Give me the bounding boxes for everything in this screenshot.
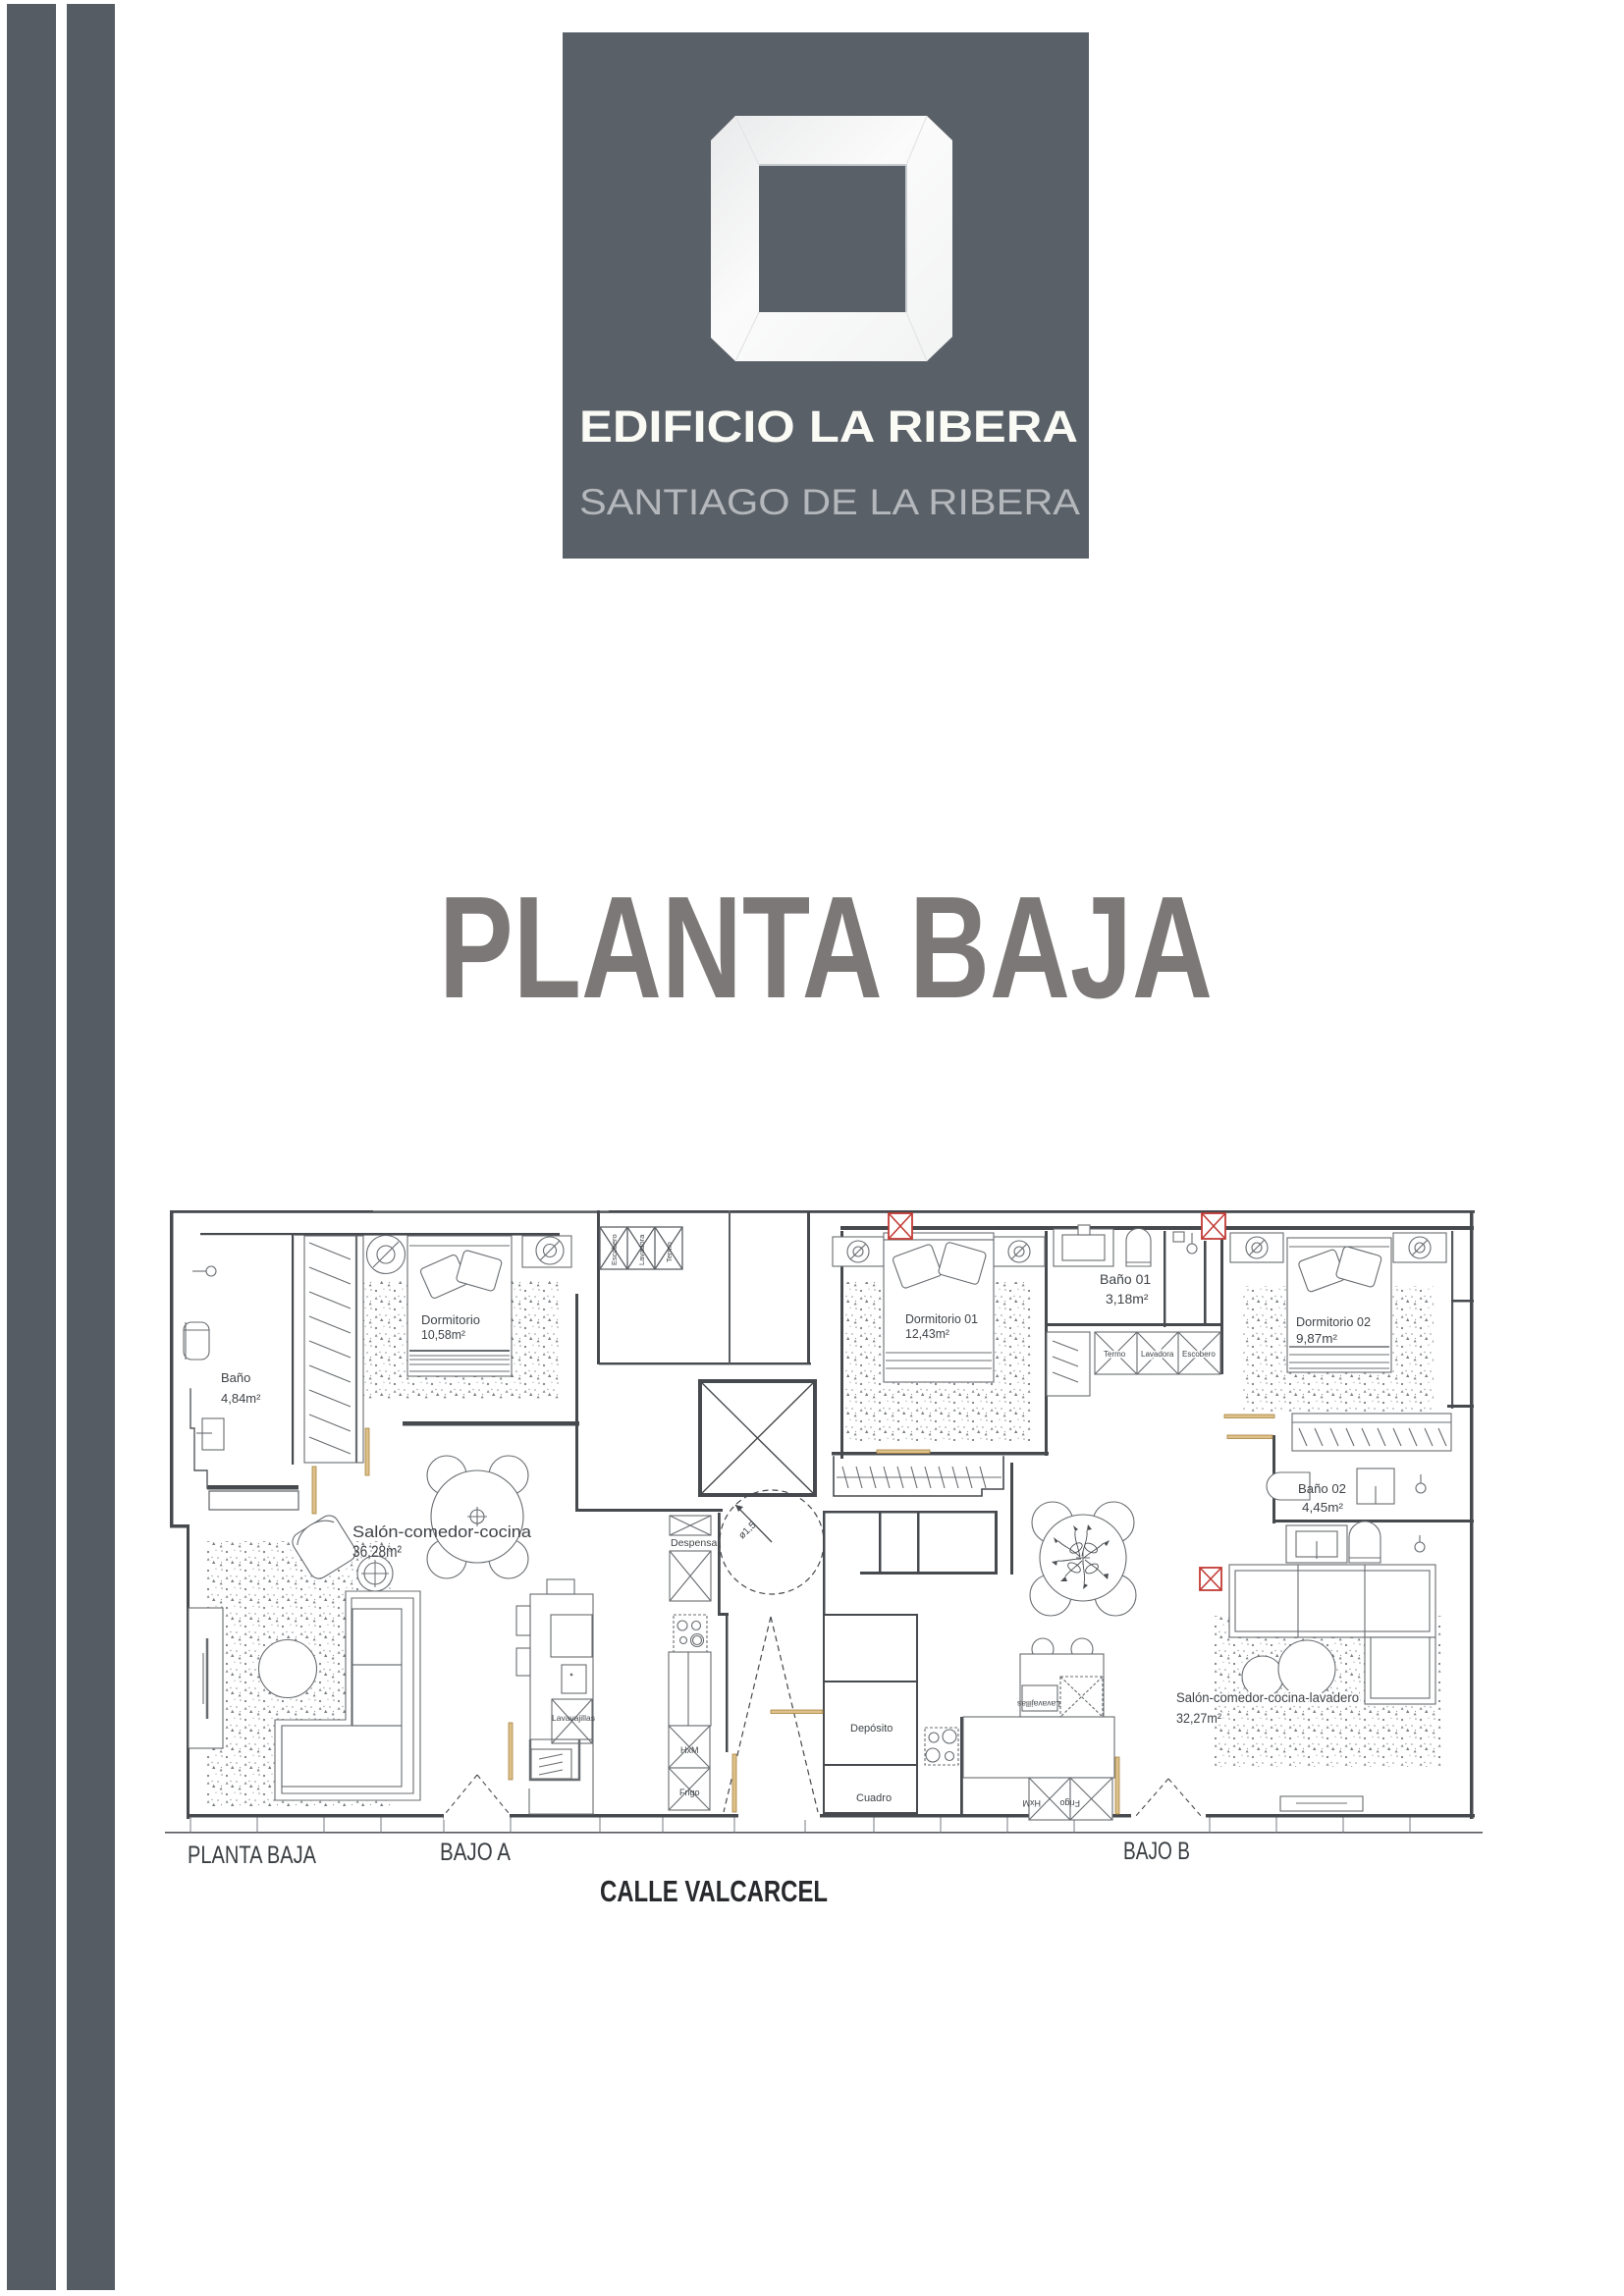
svg-text:9,87m²: 9,87m² [1296, 1331, 1338, 1346]
svg-text:Lavavajillas: Lavavajillas [552, 1713, 595, 1723]
svg-text:Termo: Termo [1104, 1350, 1126, 1359]
svg-text:10,58m²: 10,58m² [421, 1327, 466, 1342]
svg-text:4,45m²: 4,45m² [1302, 1500, 1344, 1515]
svg-text:12,43m²: 12,43m² [905, 1326, 950, 1341]
svg-text:Frigo: Frigo [679, 1788, 700, 1797]
svg-text:Termo: Termo [665, 1242, 674, 1262]
svg-text:Depósito: Depósito [850, 1723, 893, 1735]
svg-text:Baño 01: Baño 01 [1100, 1271, 1151, 1287]
svg-text:Dormitorio 01: Dormitorio 01 [905, 1311, 978, 1326]
svg-text:32,27m²: 32,27m² [1176, 1711, 1221, 1726]
svg-text:36,28m²: 36,28m² [352, 1542, 402, 1561]
svg-text:PLANTA BAJA: PLANTA BAJA [439, 867, 1213, 1029]
svg-text:PLANTA BAJA: PLANTA BAJA [188, 1842, 316, 1869]
svg-text:Baño 02: Baño 02 [1298, 1481, 1346, 1496]
svg-text:Dormitorio: Dormitorio [421, 1312, 480, 1327]
svg-text:Lavavajillas: Lavavajillas [1017, 1699, 1060, 1709]
svg-text:Despensa: Despensa [671, 1537, 717, 1549]
svg-text:Escobero: Escobero [610, 1234, 619, 1265]
svg-text:3,18m²: 3,18m² [1106, 1291, 1149, 1307]
svg-text:CALLE VALCARCEL: CALLE VALCARCEL [600, 1874, 828, 1908]
svg-text:Salón-comedor-cocina: Salón-comedor-cocina [352, 1522, 532, 1541]
svg-text:4,84m²: 4,84m² [221, 1391, 261, 1406]
svg-text:Lavadora: Lavadora [1141, 1350, 1174, 1359]
svg-text:Dormitorio 02: Dormitorio 02 [1296, 1314, 1371, 1329]
svg-text:SANTIAGO DE LA RIBERA: SANTIAGO DE LA RIBERA [579, 482, 1080, 522]
svg-text:Salón-comedor-cocina-lavadero: Salón-comedor-cocina-lavadero [1176, 1690, 1359, 1705]
svg-text:Escobero: Escobero [1182, 1350, 1216, 1359]
svg-text:HxM: HxM [1023, 1798, 1042, 1808]
svg-text:BAJO A: BAJO A [440, 1839, 511, 1866]
svg-text:ø1,5: ø1,5 [736, 1520, 758, 1541]
svg-text:EDIFICIO LA RIBERA: EDIFICIO LA RIBERA [579, 401, 1078, 452]
svg-text:Baño: Baño [221, 1370, 250, 1385]
svg-text:BAJO B: BAJO B [1123, 1838, 1190, 1865]
svg-text:Lavadora: Lavadora [637, 1234, 646, 1265]
svg-text:Frigo: Frigo [1059, 1798, 1080, 1808]
svg-text:Cuadro: Cuadro [856, 1792, 892, 1804]
svg-text:HxM: HxM [680, 1745, 699, 1755]
